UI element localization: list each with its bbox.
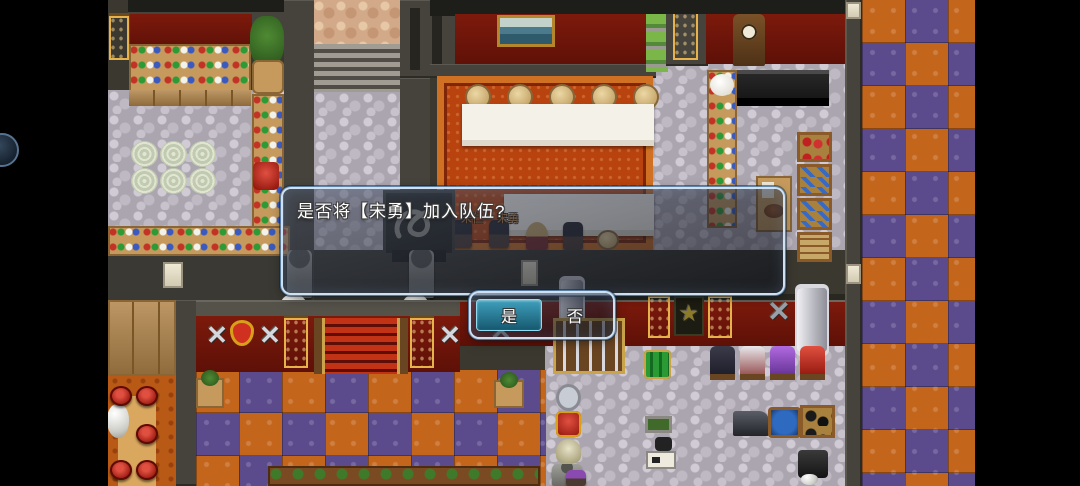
sword-icon: ✕	[203, 322, 231, 348]
round-mat	[131, 168, 158, 194]
dresser	[108, 300, 176, 376]
shop-shelf	[129, 44, 251, 92]
wall-kitchen	[706, 14, 845, 64]
framed-board	[645, 416, 672, 433]
fish-crate	[797, 164, 832, 196]
sword-icon: ✕	[436, 322, 464, 348]
anvil	[733, 411, 769, 436]
red-cart-item	[253, 162, 279, 190]
round-mat	[131, 141, 158, 167]
dialogue-text: 是否将【宋勇】加入队伍?	[297, 197, 505, 222]
banner	[648, 296, 670, 338]
dialogue-window[interactable]: 是否将【宋勇】加入队伍?	[283, 189, 783, 293]
counter-face	[108, 256, 290, 302]
wall-painting	[497, 15, 555, 47]
choice-window: 是 否	[471, 293, 613, 337]
round-mat	[160, 141, 187, 167]
plant-barrel	[252, 60, 284, 94]
bamboo-plant	[250, 16, 284, 66]
garland-bench	[268, 466, 540, 486]
armor-stand-white	[740, 346, 765, 380]
plant-table	[494, 380, 524, 408]
red-stool	[136, 460, 158, 480]
wall-pillar	[176, 300, 196, 486]
banner	[673, 12, 698, 60]
wall-lamp	[846, 2, 861, 19]
choice-no-button[interactable]: 否	[543, 300, 607, 330]
stair-post	[400, 318, 408, 374]
flower-plant	[201, 370, 219, 386]
apple-crate	[797, 132, 832, 162]
wall-right-divider	[845, 0, 862, 486]
white-jar	[801, 474, 818, 485]
checkered-floor-right	[862, 0, 975, 486]
letterbox-left	[0, 0, 108, 486]
banner	[284, 318, 308, 368]
breastplate	[556, 411, 581, 437]
armor-stand-red	[800, 346, 825, 380]
coal-crate	[800, 405, 835, 438]
sword-icon: ✕	[256, 322, 284, 348]
marble-pillar	[797, 288, 827, 352]
armor-stand-purple	[770, 346, 795, 380]
crossed-axes-icon: ✕	[763, 298, 795, 326]
armor-stand-dark	[710, 346, 735, 380]
wall-lamp	[846, 264, 861, 284]
door-slot	[432, 8, 442, 70]
game-screen: 宋仁 宋勇 ✕ ✕	[0, 0, 1080, 486]
door-slot	[410, 8, 420, 70]
green-column	[646, 14, 668, 72]
round-mat	[160, 168, 187, 194]
tapestry-left	[109, 16, 129, 60]
clock-face	[741, 24, 757, 40]
choice-yes-button[interactable]: 是	[477, 300, 541, 330]
green-chest	[644, 350, 671, 379]
banner	[708, 296, 732, 338]
entrance-stairs	[322, 318, 400, 374]
grandfather-clock	[733, 14, 765, 66]
stair-post	[314, 318, 322, 374]
slat-crate	[797, 232, 832, 262]
stairs-grey	[314, 44, 400, 92]
workbench	[646, 451, 676, 469]
red-stool	[136, 424, 158, 444]
banner	[410, 318, 434, 368]
fish-crate	[797, 198, 832, 230]
npc-sprite-bottom[interactable]	[566, 470, 586, 486]
horned-helmet	[556, 439, 581, 463]
ceiling-edge	[656, 0, 846, 14]
red-stool	[110, 386, 132, 406]
path-floor	[313, 0, 403, 48]
pentagram-icon: ★	[678, 304, 700, 324]
plant-table	[196, 378, 224, 408]
flower-plant	[500, 372, 518, 388]
red-stool	[110, 460, 132, 480]
red-stool	[136, 386, 158, 406]
pentagram-tapestry: ★	[674, 296, 704, 336]
counter-sign	[163, 262, 183, 288]
round-mat	[189, 141, 216, 167]
water-trough	[768, 407, 801, 438]
stoves	[737, 70, 829, 106]
round-mat	[189, 168, 216, 194]
plate-stack	[710, 74, 734, 96]
counter-ledge	[108, 226, 290, 256]
letterbox-right	[975, 0, 1080, 486]
white-vase	[107, 404, 129, 438]
kettle	[655, 437, 672, 451]
dining-table-top	[462, 104, 654, 146]
shop-drawers	[129, 90, 251, 106]
round-shield	[556, 384, 581, 411]
